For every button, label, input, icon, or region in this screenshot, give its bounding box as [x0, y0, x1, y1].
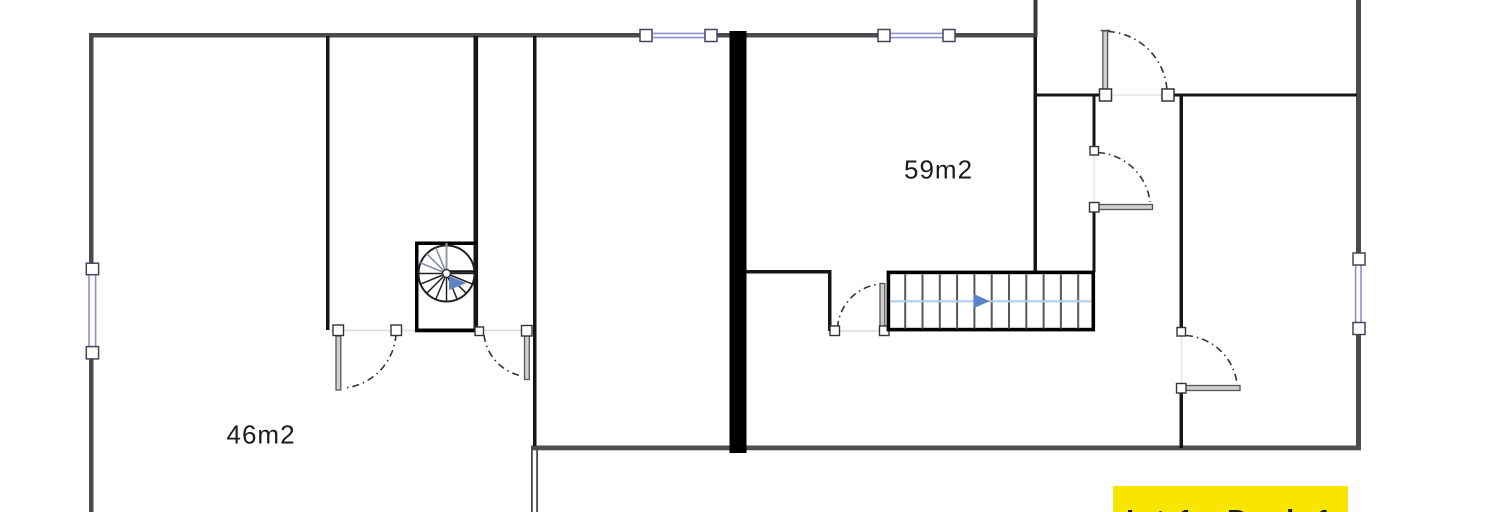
svg-text:Int 1 - Dach 1: Int 1 - Dach 1 — [1126, 505, 1332, 512]
svg-text:59m2: 59m2 — [904, 155, 973, 185]
svg-text:46m2: 46m2 — [227, 420, 296, 450]
